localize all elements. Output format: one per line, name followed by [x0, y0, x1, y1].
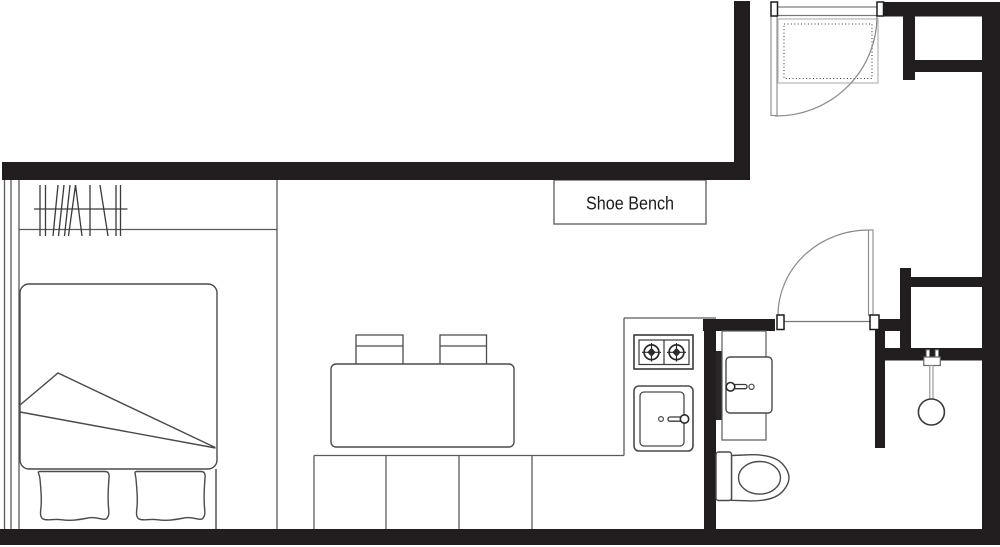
svg-text:Shoe Bench: Shoe Bench [586, 194, 674, 214]
